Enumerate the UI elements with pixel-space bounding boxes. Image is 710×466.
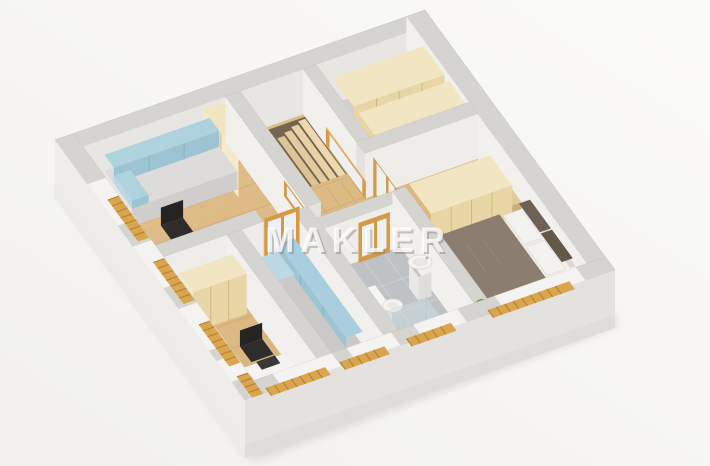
floorplan-render: MAKLER MAKLER <box>0 0 710 466</box>
watermark: MAKLER MAKLER <box>265 221 453 262</box>
watermark-text: MAKLER <box>265 221 451 260</box>
